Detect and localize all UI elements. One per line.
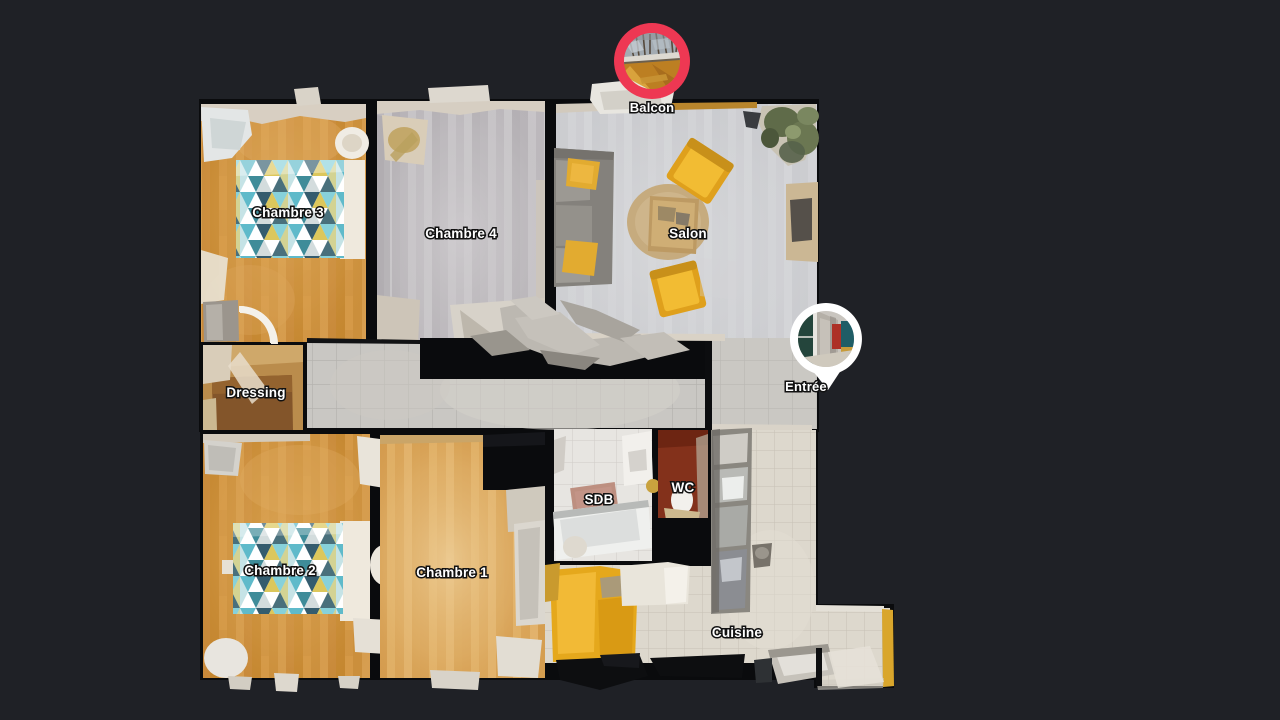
svg-text:Salon: Salon xyxy=(669,226,707,241)
svg-text:Entrée: Entrée xyxy=(785,379,827,394)
svg-text:Cuisine: Cuisine xyxy=(712,625,762,640)
svg-text:Chambre 4: Chambre 4 xyxy=(425,226,497,241)
svg-text:Chambre 1: Chambre 1 xyxy=(416,565,488,580)
svg-text:Chambre 2: Chambre 2 xyxy=(244,563,316,578)
svg-text:Chambre 3: Chambre 3 xyxy=(252,205,324,220)
svg-text:Dressing: Dressing xyxy=(226,385,285,400)
svg-text:Balcon: Balcon xyxy=(630,100,675,115)
svg-text:WC: WC xyxy=(672,480,695,495)
svg-text:SDB: SDB xyxy=(584,492,613,507)
